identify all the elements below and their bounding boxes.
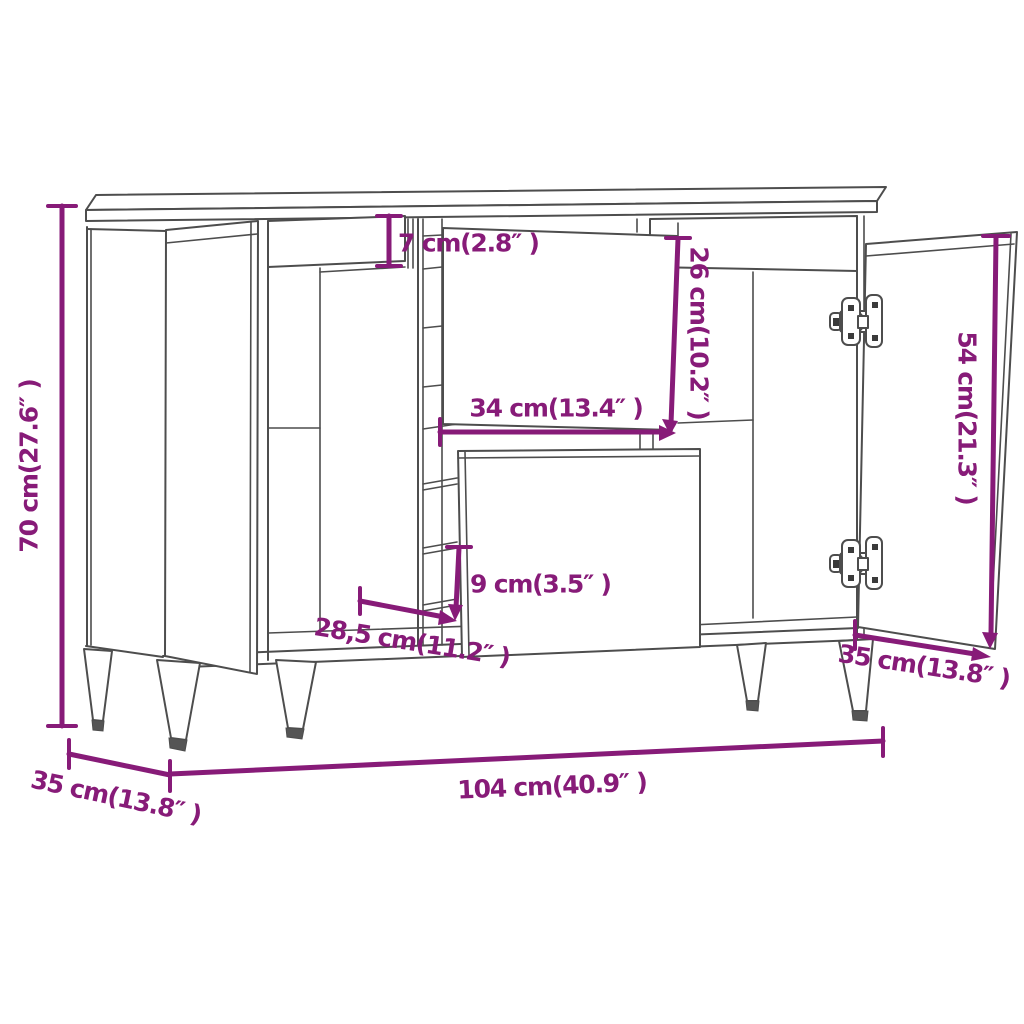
dim-compartment-width-label: 34 cm(13.4″ )	[469, 394, 642, 423]
left-door-edge-thickness	[250, 222, 251, 672]
dim-height-label: 70 cm(27.6″ )	[15, 379, 44, 552]
dim-width-label: 104 cm(40.9″ )	[457, 767, 647, 804]
dim-width: 104 cm(40.9″ )	[170, 728, 883, 805]
dim-compartment-height-label: 26 cm(10.2″ )	[685, 246, 714, 419]
leg-front-left	[276, 660, 316, 739]
left-top-drawer-front	[268, 216, 405, 267]
left-door-open	[165, 221, 258, 674]
leg-right-middle	[737, 643, 766, 711]
sideboard-dimension-diagram: 70 cm(27.6″ ) 7 cm(2.8″ ) 26 cm(10.2″ ) …	[0, 0, 1024, 1024]
right-compartment-shelf-edge	[678, 420, 753, 423]
leg-front-left-side	[157, 660, 200, 751]
dim-top-drawer-height-label: 7 cm(2.8″ )	[398, 229, 539, 258]
dim-height: 70 cm(27.6″ )	[15, 206, 77, 726]
door-hinge-bottom-icon	[830, 537, 882, 589]
left-door-panel	[165, 221, 258, 674]
dim-drawer-height-label: 9 cm(3.5″ )	[470, 570, 611, 599]
leg-back-left	[84, 649, 112, 731]
door-hinge-top-icon	[830, 295, 882, 347]
right-top-drawer-front	[650, 216, 857, 271]
cabinet-top-panel	[86, 187, 886, 221]
left-side-top-edge	[87, 229, 166, 231]
pulled-out-drawer	[458, 449, 700, 657]
drawer-front-panel	[458, 449, 700, 657]
dim-door-height-label: 54 cm(21.3″ )	[953, 331, 982, 504]
dim-depth-left: 35 cm(13.8″ )	[28, 740, 203, 829]
diagram-canvas: 70 cm(27.6″ ) 7 cm(2.8″ ) 26 cm(10.2″ ) …	[0, 0, 1024, 1024]
